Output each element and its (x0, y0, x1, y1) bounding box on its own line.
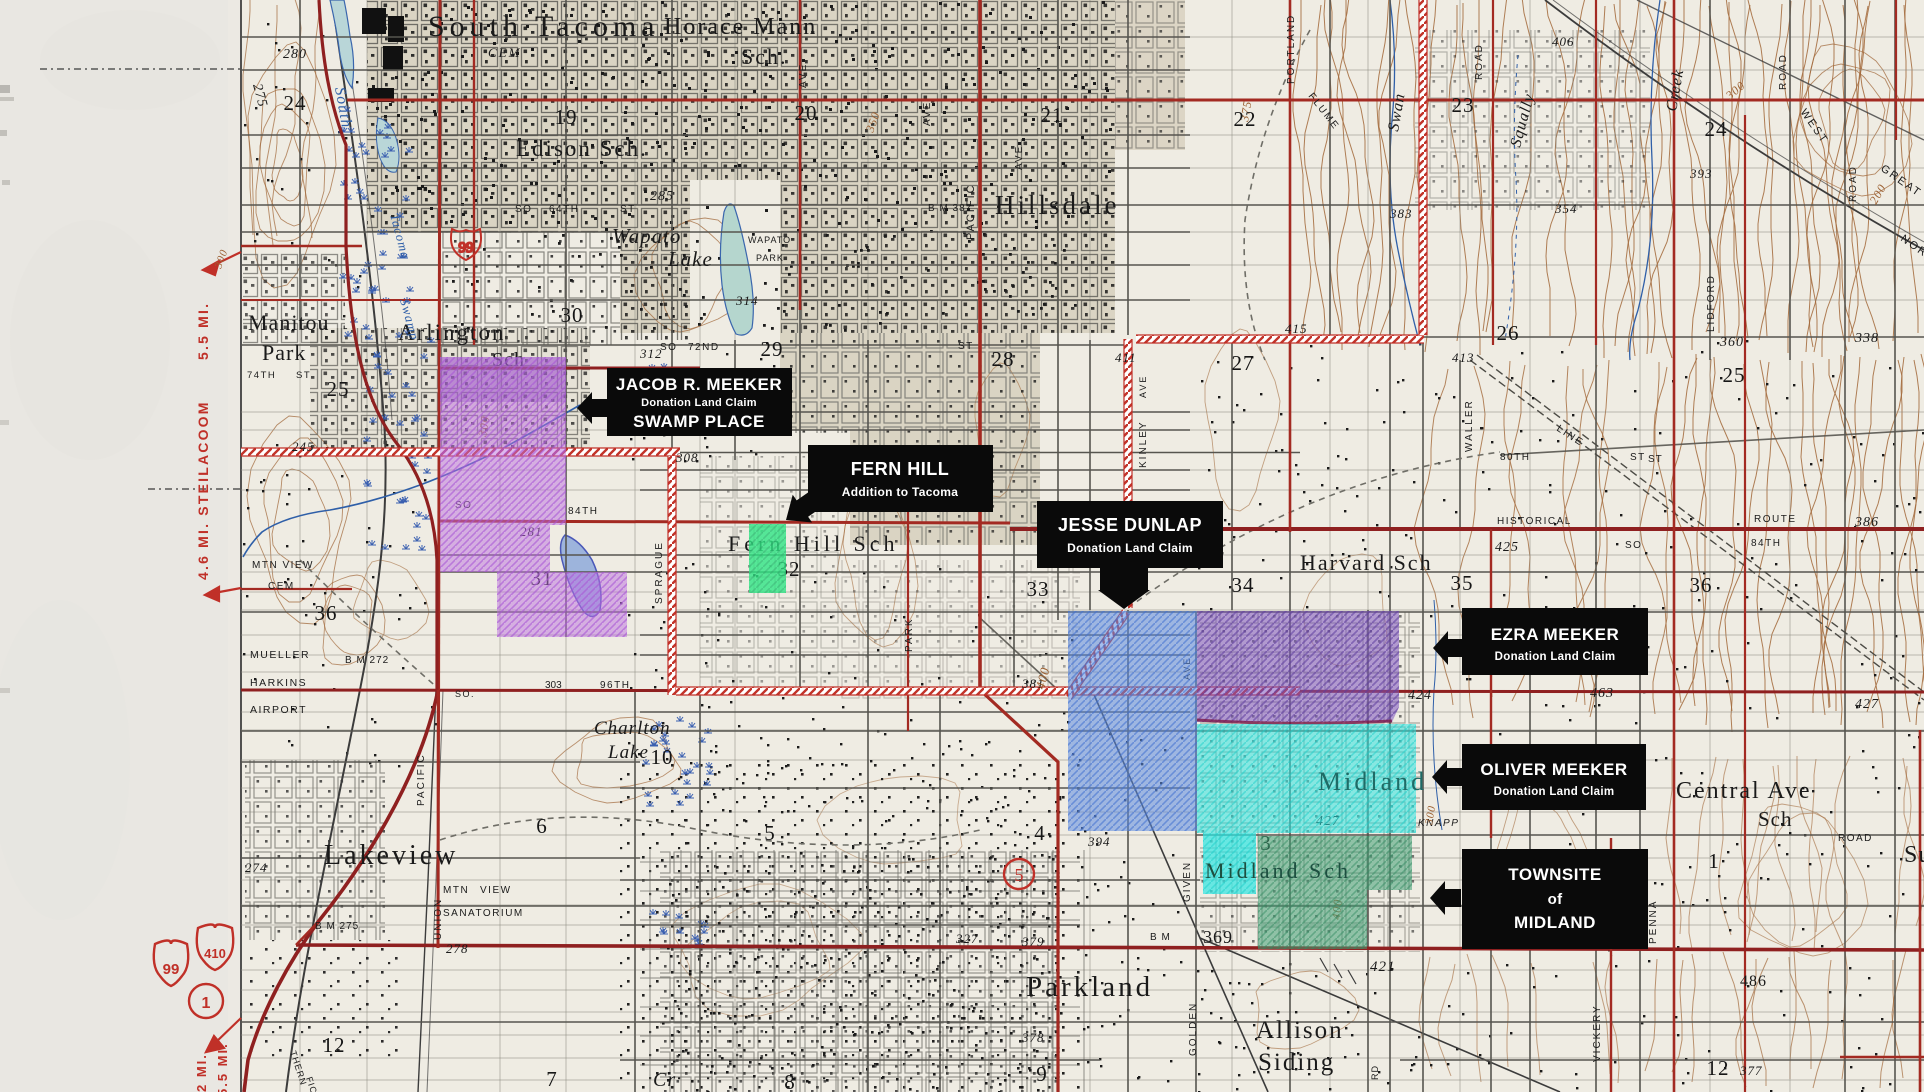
svg-text:SWAMP PLACE: SWAMP PLACE (633, 412, 765, 431)
svg-text:B M 272: B M 272 (345, 655, 389, 666)
svg-text:25: 25 (1723, 363, 1746, 387)
svg-text:1: 1 (1708, 849, 1720, 873)
svg-text:Midland Sch: Midland Sch (1205, 858, 1351, 883)
svg-text:278: 278 (446, 941, 469, 956)
svg-text:HARKINS: HARKINS (250, 677, 307, 689)
svg-text:308: 308 (675, 450, 699, 465)
svg-text:MTN: MTN (443, 885, 469, 896)
svg-text:ST: ST (1630, 452, 1646, 463)
svg-text:20: 20 (795, 101, 818, 125)
svg-text:29: 29 (761, 337, 784, 361)
svg-text:360: 360 (1719, 335, 1744, 350)
svg-text:LIDFORD: LIDFORD (1706, 274, 1717, 332)
svg-text:SO: SO (1625, 540, 1642, 551)
svg-text:SO.: SO. (455, 689, 475, 699)
svg-text:HISTORICAL: HISTORICAL (1497, 516, 1572, 527)
svg-text:10: 10 (651, 745, 674, 769)
svg-text:RD: RD (1370, 1065, 1380, 1080)
svg-text:OLIVER MEEKER: OLIVER MEEKER (1480, 760, 1627, 779)
svg-text:ROUTE: ROUTE (1754, 514, 1797, 525)
svg-text:Edison Sch.: Edison Sch. (516, 136, 648, 161)
svg-text:Lakeview: Lakeview (324, 840, 458, 871)
svg-text:Allison: Allison (1256, 1017, 1344, 1044)
svg-text:AVE: AVE (798, 63, 809, 88)
svg-text:338: 338 (1854, 331, 1879, 346)
svg-text:SO: SO (660, 342, 677, 353)
svg-text:ROAD: ROAD (1838, 833, 1873, 844)
svg-text:393: 393 (1689, 166, 1713, 181)
svg-text:PENNA: PENNA (1648, 900, 1659, 944)
svg-text:383: 383 (1389, 206, 1413, 221)
svg-text:of: of (1548, 891, 1563, 908)
svg-text:12: 12 (1707, 1056, 1730, 1080)
svg-text:27: 27 (1232, 351, 1255, 375)
svg-text:421: 421 (1370, 959, 1396, 975)
svg-text:5.5 MI.: 5.5 MI. (215, 1042, 230, 1092)
svg-text:ROAD: ROAD (1848, 165, 1859, 202)
svg-text:PORTLAND: PORTLAND (1286, 14, 1297, 84)
svg-text:CEM: CEM (488, 45, 521, 60)
svg-text:8: 8 (784, 1070, 796, 1092)
svg-text:314: 314 (735, 293, 759, 308)
svg-text:1: 1 (202, 995, 211, 1012)
svg-text:486: 486 (1740, 973, 1767, 990)
svg-text:JACOB R. MEEKER: JACOB R. MEEKER (616, 375, 782, 394)
svg-text:23: 23 (1452, 93, 1475, 117)
svg-text:AVE: AVE (922, 101, 933, 126)
svg-text:Su: Su (1904, 842, 1924, 868)
svg-text:Donation Land Claim: Donation Land Claim (1067, 541, 1193, 555)
svg-text:36: 36 (315, 601, 338, 625)
svg-text:5.5 MI.: 5.5 MI. (195, 302, 211, 360)
svg-text:6: 6 (536, 814, 548, 838)
svg-text:Park: Park (262, 340, 306, 365)
svg-text:B M 275: B M 275 (315, 921, 359, 932)
svg-text:Donation Land Claim: Donation Land Claim (1495, 651, 1616, 663)
svg-text:274: 274 (245, 860, 268, 875)
svg-text:427: 427 (1855, 697, 1879, 712)
svg-text:PARK: PARK (904, 618, 915, 653)
svg-text:Midland: Midland (1318, 767, 1427, 796)
svg-text:312: 312 (639, 346, 663, 361)
svg-text:379: 379 (1021, 934, 1045, 949)
svg-text:303: 303 (545, 680, 562, 691)
svg-text:5: 5 (764, 821, 776, 845)
svg-text:TOWNSITE: TOWNSITE (1508, 865, 1601, 884)
svg-text:Harvard Sch: Harvard Sch (1300, 550, 1433, 575)
svg-text:MUELLER: MUELLER (250, 649, 310, 661)
svg-text:ST: ST (620, 204, 636, 215)
svg-text:ST: ST (1648, 454, 1663, 465)
svg-text:28: 28 (992, 347, 1015, 371)
svg-text:7: 7 (546, 1067, 558, 1091)
svg-text:Donation Land Claim: Donation Land Claim (641, 397, 757, 409)
svg-text:84TH: 84TH (1751, 538, 1781, 549)
svg-text:VICKERY: VICKERY (1592, 1004, 1603, 1062)
svg-text:410: 410 (204, 946, 226, 961)
svg-text:25: 25 (327, 377, 350, 401)
svg-text:GIVEN: GIVEN (1182, 861, 1193, 902)
svg-text:285: 285 (650, 189, 674, 204)
svg-text:30: 30 (561, 303, 584, 327)
svg-text:369: 369 (1203, 927, 1233, 947)
svg-text:ST: ST (958, 341, 974, 352)
svg-text:33: 33 (1027, 577, 1050, 601)
svg-text:Charlton: Charlton (594, 718, 671, 739)
svg-text:UNION: UNION (433, 898, 444, 940)
svg-text:377: 377 (1739, 1063, 1763, 1078)
svg-text:Addition to Tacoma: Addition to Tacoma (842, 485, 959, 499)
svg-text:Manitou: Manitou (248, 310, 330, 335)
svg-text:JESSE DUNLAP: JESSE DUNLAP (1058, 515, 1202, 535)
svg-text:Donation Land Claim: Donation Land Claim (1494, 786, 1615, 798)
svg-text:378: 378 (1021, 1030, 1045, 1045)
svg-text:9: 9 (1036, 1062, 1048, 1086)
svg-text:SANATORIUM: SANATORIUM (443, 908, 524, 919)
svg-text:FERN HILL: FERN HILL (851, 459, 950, 479)
svg-text:74TH: 74TH (247, 370, 276, 381)
svg-text:415: 415 (1285, 321, 1308, 336)
svg-text:ST: ST (296, 370, 311, 381)
svg-text:245: 245 (292, 439, 315, 454)
svg-text:5: 5 (1015, 865, 1024, 885)
svg-text:4: 4 (1034, 821, 1046, 845)
svg-text:MIDLAND: MIDLAND (1514, 913, 1596, 932)
svg-text:EZRA MEEKER: EZRA MEEKER (1491, 625, 1620, 644)
svg-text:AIRPORT: AIRPORT (250, 704, 307, 716)
svg-text:413: 413 (1452, 350, 1475, 365)
svg-text:WAPATO: WAPATO (748, 235, 791, 245)
svg-text:19: 19 (555, 105, 578, 129)
svg-text:SO: SO (515, 204, 532, 215)
svg-text:21: 21 (1041, 103, 1064, 127)
svg-text:26: 26 (1497, 321, 1520, 345)
svg-text:22: 22 (1234, 107, 1257, 131)
svg-text:84TH: 84TH (568, 506, 598, 517)
svg-text:Horace Mann: Horace Mann (664, 14, 817, 40)
svg-text:64TH: 64TH (549, 204, 579, 215)
svg-text:KINLEY: KINLEY (1138, 420, 1149, 468)
svg-text:99: 99 (163, 961, 180, 978)
svg-text:Siding: Siding (1258, 1049, 1335, 1076)
svg-text:394: 394 (1087, 834, 1111, 849)
svg-text:99: 99 (459, 240, 474, 256)
svg-text:327: 327 (955, 931, 979, 946)
svg-text:B M: B M (1150, 932, 1171, 943)
svg-text:35: 35 (1451, 571, 1474, 595)
svg-text:Sch: Sch (1758, 807, 1793, 831)
svg-text:AVE: AVE (1014, 145, 1025, 170)
svg-text:96TH: 96TH (600, 680, 630, 691)
svg-text:AVE: AVE (1138, 375, 1148, 398)
svg-text:424: 424 (1408, 688, 1432, 703)
svg-text:36: 36 (1690, 573, 1713, 597)
svg-text:PARK: PARK (756, 253, 784, 263)
svg-text:Sch.: Sch. (741, 44, 788, 69)
svg-text:GOLDEN: GOLDEN (1188, 1002, 1199, 1056)
svg-text:Lake: Lake (607, 742, 649, 763)
svg-text:Lake: Lake (667, 247, 713, 271)
svg-text:CEM: CEM (268, 581, 295, 592)
svg-text:Central Ave: Central Ave (1676, 778, 1812, 804)
svg-text:ROAD: ROAD (1474, 43, 1485, 80)
svg-text:Parkland: Parkland (1026, 971, 1153, 1003)
svg-text:406: 406 (1552, 34, 1575, 49)
svg-text:Wapato: Wapato (612, 224, 681, 248)
svg-text:72ND: 72ND (688, 342, 720, 353)
svg-text:WALLER: WALLER (1464, 399, 1475, 452)
svg-text:VIEW: VIEW (480, 885, 512, 896)
svg-text:386: 386 (1854, 515, 1879, 530)
svg-text:24: 24 (284, 91, 307, 115)
svg-text:PACIFIC: PACIFIC (965, 183, 977, 240)
svg-text:280: 280 (283, 47, 307, 62)
svg-text:463: 463 (1590, 686, 1614, 701)
svg-text:South Tacoma: South Tacoma (428, 10, 660, 43)
svg-text:425: 425 (1495, 540, 1519, 555)
svg-text:MTN VIEW: MTN VIEW (252, 560, 314, 571)
svg-text:12: 12 (323, 1033, 346, 1057)
svg-text:SPRAGUE: SPRAGUE (654, 541, 665, 604)
svg-text:PACIFIC: PACIFIC (416, 753, 427, 806)
svg-text:80TH: 80TH (1500, 452, 1530, 463)
svg-text:2 MI.: 2 MI. (194, 1053, 209, 1092)
svg-text:411: 411 (1115, 350, 1137, 365)
svg-text:24: 24 (1705, 117, 1728, 141)
svg-text:354: 354 (1554, 201, 1578, 216)
svg-text:ROAD: ROAD (1778, 53, 1789, 90)
svg-text:34: 34 (1232, 573, 1255, 597)
svg-text:Cr: Cr (653, 1069, 676, 1091)
svg-text:Hillsdale: Hillsdale (995, 190, 1119, 220)
svg-text:4.6 MI. STEILACOOM: 4.6 MI. STEILACOOM (195, 400, 211, 580)
